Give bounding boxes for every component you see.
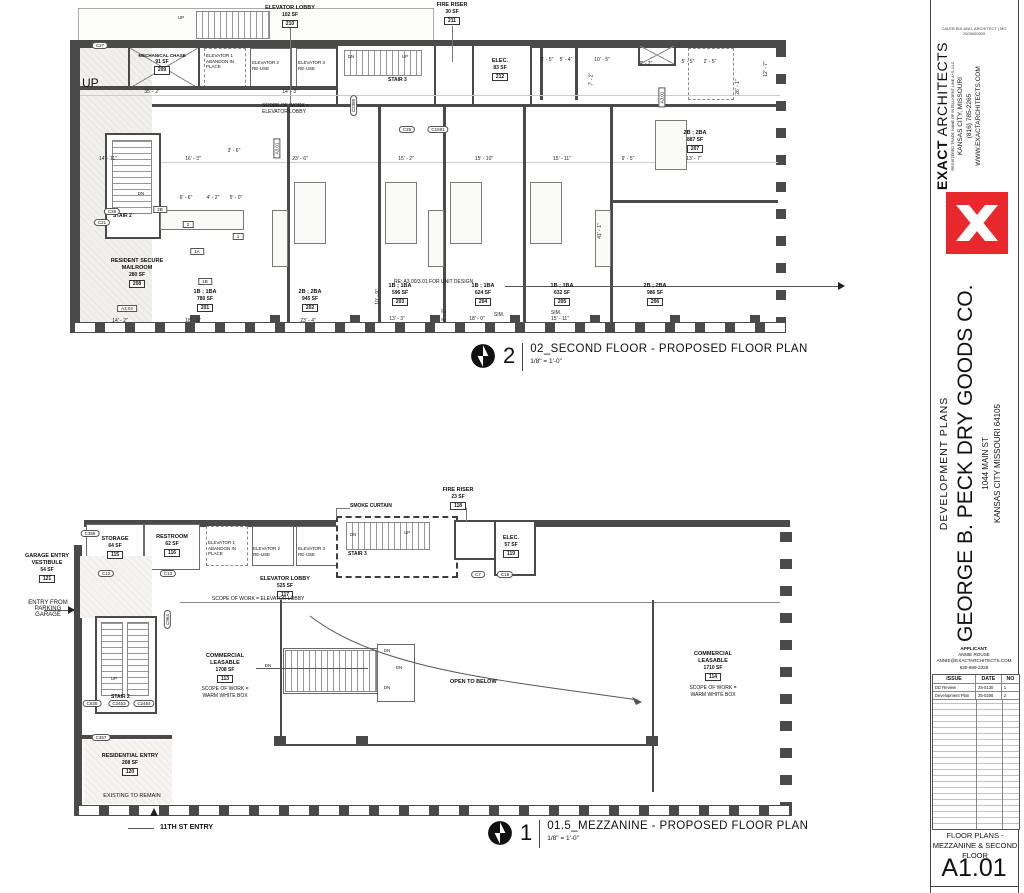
elevator3-label: ELEVATOR 3 RE-USE <box>298 60 338 71</box>
wall <box>80 86 336 90</box>
plan-title-mezzanine: 1 01.5_MEZZANINE - PROPOSED FLOOR PLAN 1… <box>487 820 808 848</box>
dimension-label: 10' - 5" <box>594 57 610 63</box>
divider <box>539 820 540 848</box>
mezz-edge <box>280 600 282 746</box>
unit-label-207: 2B ; 2BA 887 SF 207 <box>660 130 730 153</box>
plan-title-text: 01.5_MEZZANINE - PROPOSED FLOOR PLAN <box>547 820 808 832</box>
unit-label-202: 2B ; 2BA 945 SF 202 <box>275 289 345 312</box>
wall <box>80 735 172 739</box>
divider <box>522 343 523 371</box>
room-label-garage-vestibule: GARAGE ENTRY VESTIBULE 54 SF 121 <box>6 553 88 583</box>
firm-logo <box>946 192 1008 254</box>
stair3-treads <box>346 522 430 550</box>
bath-pod <box>450 182 482 244</box>
mezz-edge <box>280 744 654 746</box>
reference-tag: C964 <box>164 610 171 629</box>
dimension-label: 26' - 1" <box>735 79 741 95</box>
arrowhead-icon <box>838 282 845 290</box>
unit-label-205: 1B ; 1BA 632 SF 205 <box>527 283 597 306</box>
room-label-commercial-113: COMMERCIAL LEASABLE 1708 SF 113 SCOPE OF… <box>180 653 270 699</box>
unit-wall <box>610 200 778 203</box>
smoke-leader <box>336 508 337 518</box>
dimension-label: 4' - 2" <box>207 195 220 201</box>
stair3-label: STAIR 3 <box>348 551 367 557</box>
stair2-treads <box>101 622 123 696</box>
unit-wall <box>523 107 526 322</box>
firm-web: WWW.EXACTARCHITECTS.COM <box>975 42 982 190</box>
applicant-block: APPLICANT: ANNIE ROUSE ANNIE@EXACTARCHIT… <box>930 646 1018 671</box>
firm-city: KANSAS CITY, MISSOURI <box>957 42 964 190</box>
issue-table: ISSUE DATE NO DD Review 25-0130 1 Develo… <box>932 674 1020 830</box>
drawing-sheet: { "sheet": { "architect_note": "CALEB BU… <box>0 0 1024 893</box>
kitchen-counter <box>595 210 611 267</box>
wall <box>70 40 80 330</box>
room-label-mech-chase: MECHANICAL CHASE 91 SF 209 <box>129 53 195 75</box>
reference-tag: C25 <box>399 126 415 133</box>
elevator1-label: ELEVATOR 1 ABANDON IN PLACE <box>208 540 248 557</box>
issue-table-empty-rows <box>933 700 1019 829</box>
plan-scale: 1/8" = 1'-0" <box>530 358 807 365</box>
leader-line <box>452 26 453 62</box>
stair2-treads <box>127 622 149 696</box>
kitchen-counter <box>160 210 244 230</box>
stair2-label: STAIR 2 <box>111 694 130 700</box>
firm-name: EXACT ARCHITECTS <box>934 42 950 190</box>
plan-title-text: 02_SECOND FLOOR - PROPOSED FLOOR PLAN <box>530 343 807 355</box>
project-block: DEVELOPMENT PLANS GEORGE B. PECK DRY GOO… <box>934 285 1018 642</box>
north-arrow-icon <box>470 343 496 369</box>
dimension-label: 12' - 7" <box>763 61 769 77</box>
room-label-storage: STORAGE 64 SF 115 <box>88 536 142 559</box>
garage-entry-note: ENTRY FROM PARKING GARAGE <box>10 600 86 618</box>
kitchen-counter <box>272 210 288 267</box>
reference-tag: A3.01 <box>273 139 280 159</box>
storefront-wall <box>74 805 792 816</box>
elevator2-label: ELEVATOR 2 RE-USE <box>253 546 295 557</box>
reference-tag: 1 <box>233 233 244 240</box>
column <box>274 736 286 746</box>
firm-tagline: REGISTERED TRADE NAME OF INTELLIGENT LIN… <box>951 42 955 190</box>
smoke-leader <box>336 508 350 509</box>
dimension-label: 5' - 4" <box>560 57 573 63</box>
dimension-label: 7' - 2" <box>588 73 594 86</box>
leader-line <box>128 828 154 829</box>
firm-phone: (816) 785-2265 <box>966 42 973 190</box>
street-entry-note: 11TH ST ENTRY <box>160 824 213 831</box>
firm-block: EXACT ARCHITECTS REGISTERED TRADE NAME O… <box>934 42 1012 190</box>
reference-tag: C13 <box>160 570 176 577</box>
wall <box>575 44 578 100</box>
room-label-restroom: RESTROOM 62 SF 116 <box>146 534 198 557</box>
issue-row: Development Plan 25-0206 2 <box>933 692 1019 700</box>
project-address1: 1044 MAIN ST <box>981 285 990 642</box>
corridor-wall <box>152 104 778 107</box>
scope-note: SCOPE OF WORK = ELEVATOR LOBBY <box>262 103 309 115</box>
storefront-wall <box>70 322 786 333</box>
existing-note: EXISTING TO REMAIN <box>92 793 172 799</box>
titleblock-line <box>930 886 1018 887</box>
vestibule-hatch <box>80 556 152 618</box>
room-label-residential-entry: RESIDENTIAL ENTRY 208 SF 120 <box>90 753 170 776</box>
architect-note: CALEB BULAND, ARCHITECT | MO 2009000509 <box>930 26 1018 36</box>
unit-label-203: 1B ; 1BA 596 SF 203 <box>365 283 435 306</box>
room-label-fire-riser: FIRE RISER 30 SF 211 <box>420 2 484 25</box>
room-label-elec: ELEC. 83 SF 212 <box>472 58 528 81</box>
elevator3-label: ELEVATOR 3 RE-USE <box>298 546 340 557</box>
room-label-elec: ELEC. 57 SF 119 <box>482 535 540 558</box>
smoke-curtain-note: SMOKE CURTAIN <box>350 503 392 509</box>
up-label: UP <box>82 76 99 90</box>
stair2-label: STAIR 2 <box>113 213 132 219</box>
open-to-below-note: OPEN TO BELOW <box>450 679 497 685</box>
dimension-label: 3' - 6" <box>228 148 241 154</box>
unit-label-201: 1B ; 1BA 780 SF 201 <box>170 289 240 312</box>
bath-pod <box>530 182 562 244</box>
plan-number: 2 <box>503 345 515 367</box>
stair3-treads <box>344 50 422 76</box>
plan-scale: 1/8" = 1'-0" <box>547 835 808 842</box>
titleblock-border <box>930 0 931 893</box>
reference-tag: 1B <box>198 278 212 285</box>
unit-label-204: 1B ; 1BA 624 SF 204 <box>448 283 518 306</box>
reference-tag: C7 <box>471 571 485 578</box>
window-wall <box>780 527 792 807</box>
entry-marker-icon <box>150 808 158 816</box>
chase-box <box>638 44 676 66</box>
scope-note: SCOPE OF WORK = ELEVATOR LOBBY <box>212 596 304 602</box>
issue-table-header: ISSUE DATE NO <box>933 675 1019 684</box>
lobby-edge-line <box>180 602 780 603</box>
project-type: DEVELOPMENT PLANS <box>938 285 950 642</box>
stair3-label: STAIR 3 <box>388 77 407 83</box>
travel-path-curve <box>290 608 660 712</box>
sheet-number: A1.01 <box>930 854 1018 883</box>
room-label-mailroom: RESIDENT SECURE MAILROOM 280 SF 208 <box>95 258 179 288</box>
fire-riser-room <box>434 44 476 106</box>
project-address2: KANSAS CITY MISSOURI 64105 <box>993 285 1002 642</box>
room-label-commercial-114: COMMERCIAL LEASABLE 1710 SF 114 SCOPE OF… <box>668 651 758 698</box>
room-label-elevator-lobby: ELEVATOR LOBBY 102 SF 210 <box>252 5 328 28</box>
wall <box>540 44 543 100</box>
dimension-label: 5' - 0" <box>230 195 243 201</box>
unit-design-note: RE: A3.00/3.01 FOR UNIT DESIGN <box>394 279 473 285</box>
dimension-label: 6' - 6" <box>180 195 193 201</box>
bath-pod <box>385 182 417 244</box>
applicant-email: ANNIE@EXACTARCHITECTS.COM <box>930 658 1018 664</box>
closet-box <box>688 48 734 100</box>
plan-number: 1 <box>520 822 532 844</box>
bath-pod <box>294 182 326 244</box>
project-name: GEORGE B. PECK DRY GOODS CO. <box>954 285 978 642</box>
unit-label-206: 2B ; 2BA 986 SF 206 <box>620 283 690 306</box>
plan-title-second-floor: 2 02_SECOND FLOOR - PROPOSED FLOOR PLAN … <box>470 343 808 371</box>
elevator2-label: ELEVATOR 2 RE-USE <box>252 60 292 71</box>
north-arrow-icon <box>487 820 513 846</box>
applicant-phone: 630-699-2329 <box>930 665 1018 671</box>
column <box>356 736 368 746</box>
reference-tag: 1A <box>190 248 204 255</box>
window-wall <box>776 48 786 322</box>
elevator1-label: ELEVATOR 1 ABANDON IN PLACE <box>206 53 244 70</box>
column <box>646 736 658 746</box>
stair2-treads <box>112 140 152 214</box>
room-label-fire-riser: FIRE RISER 23 SF 118 <box>426 487 490 510</box>
dimension-line <box>80 95 780 96</box>
kitchen-counter <box>428 210 444 267</box>
issue-row: DD Review 25-0130 1 <box>933 684 1019 692</box>
